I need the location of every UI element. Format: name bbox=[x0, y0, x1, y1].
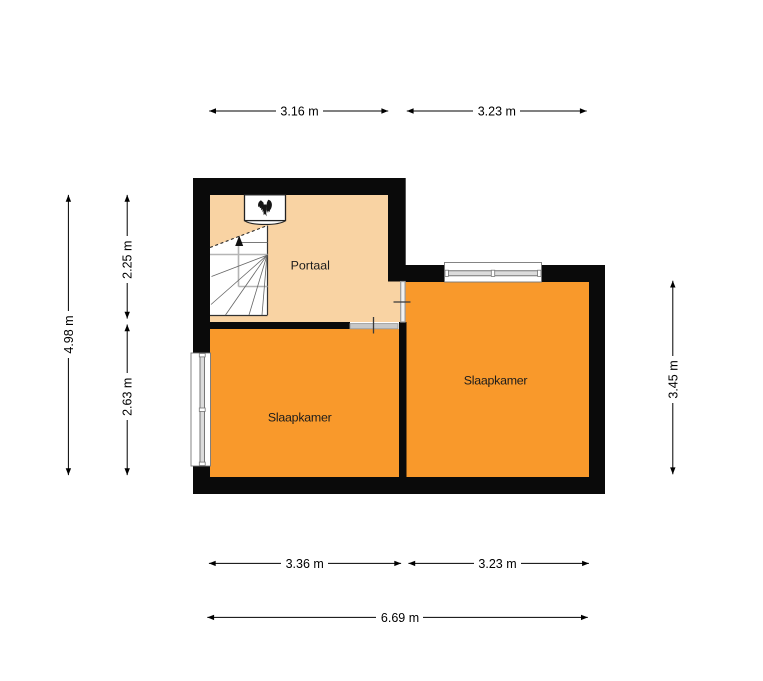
svg-text:3.45 m: 3.45 m bbox=[666, 360, 680, 398]
svg-text:Slaapkamer: Slaapkamer bbox=[464, 373, 528, 387]
svg-text:3.36 m: 3.36 m bbox=[286, 557, 324, 571]
svg-text:Portaal: Portaal bbox=[291, 259, 330, 273]
svg-text:3.23 m: 3.23 m bbox=[478, 105, 516, 119]
svg-text:6.69 m: 6.69 m bbox=[381, 611, 419, 625]
svg-text:4.98 m: 4.98 m bbox=[62, 315, 76, 353]
svg-text:2.63 m: 2.63 m bbox=[121, 378, 135, 416]
svg-text:3.23 m: 3.23 m bbox=[478, 557, 516, 571]
svg-text:2.25 m: 2.25 m bbox=[121, 241, 135, 279]
svg-text:Slaapkamer: Slaapkamer bbox=[268, 410, 332, 424]
svg-text:3.16 m: 3.16 m bbox=[280, 105, 318, 119]
